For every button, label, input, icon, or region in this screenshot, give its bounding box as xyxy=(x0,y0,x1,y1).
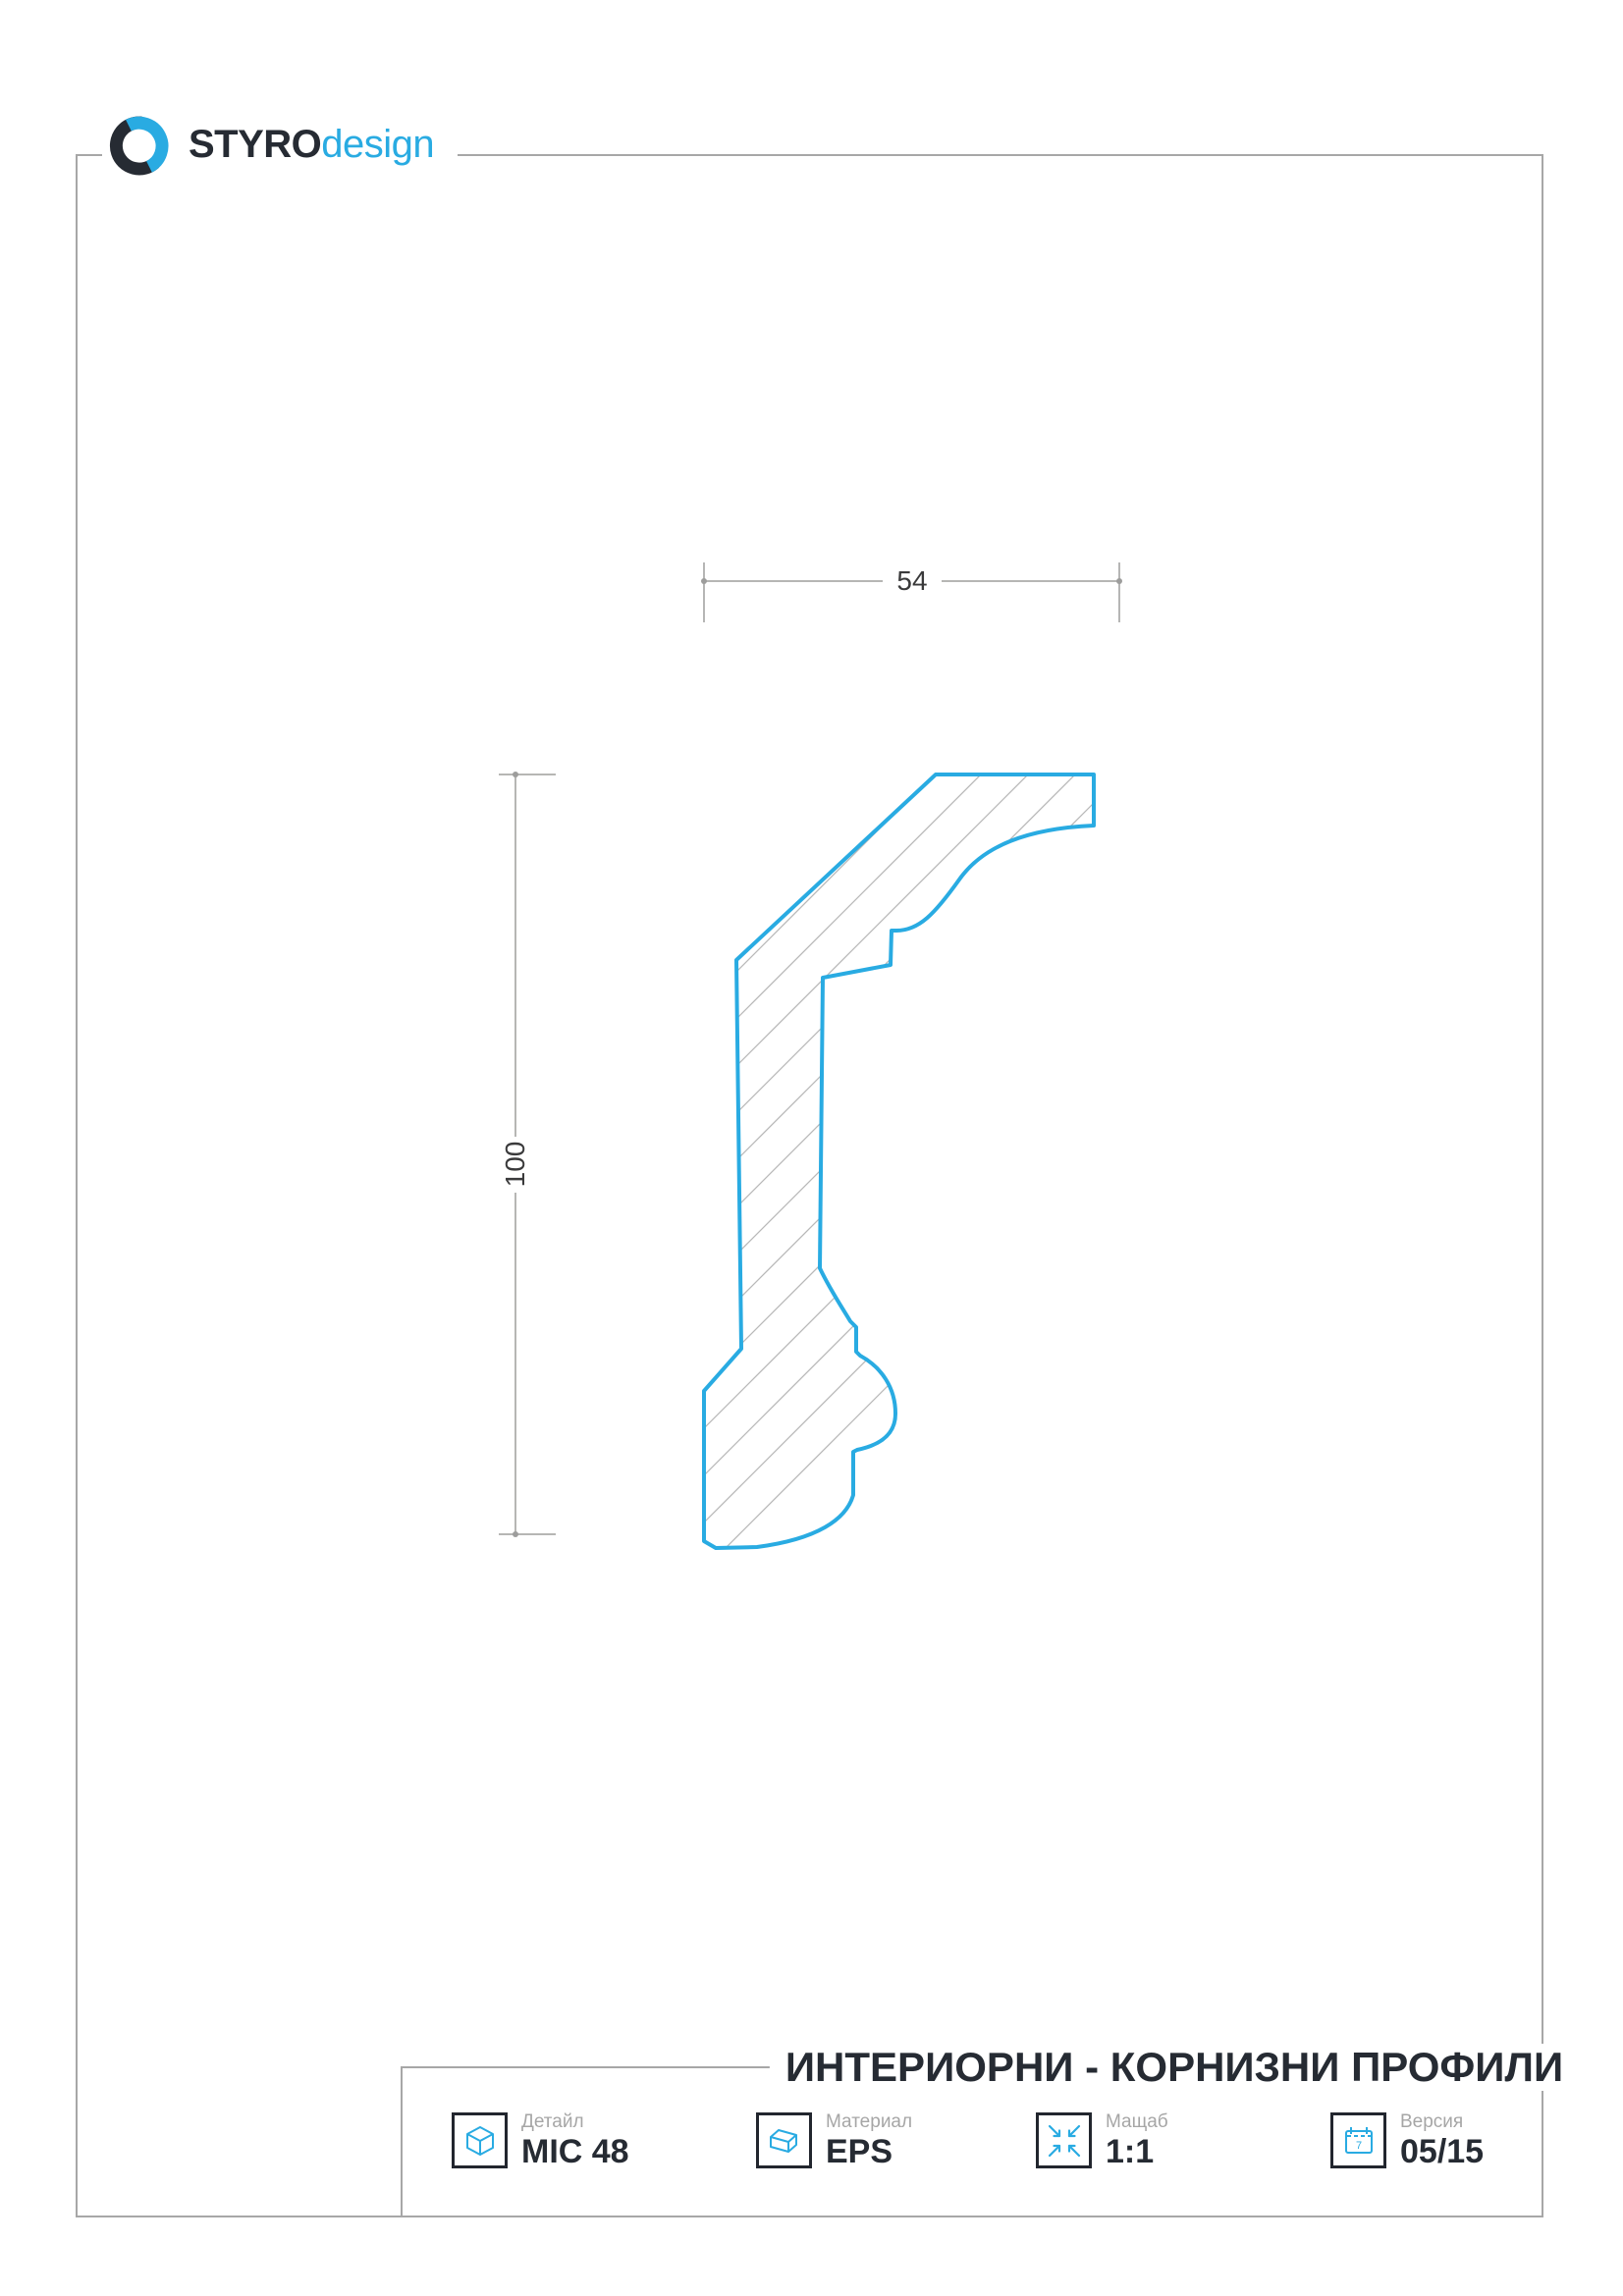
material-value: EPS xyxy=(826,2135,912,2170)
logo-wordmark: STYROdesign xyxy=(189,125,434,164)
title-block-left-border xyxy=(401,2066,403,2216)
calendar-icon: 7 xyxy=(1339,2121,1379,2161)
version-icon-box: 7 xyxy=(1330,2112,1386,2168)
logo-text-design: design xyxy=(321,123,434,166)
hatch-line xyxy=(183,638,1164,1620)
calendar-day-text: 7 xyxy=(1355,2140,1361,2152)
material-block-icon xyxy=(765,2121,804,2161)
material-label: Материал xyxy=(826,2112,912,2133)
detail-value: MIC 48 xyxy=(521,2135,629,2170)
logo-text-styro: STYRO xyxy=(189,123,321,166)
section-hatching xyxy=(88,638,1623,1620)
logo: STYROdesign xyxy=(102,99,458,189)
title-block-item-scale: Мащаб 1:1 xyxy=(1036,2112,1168,2170)
scale-icon-box xyxy=(1036,2112,1092,2168)
profile-drawing: 54 100 xyxy=(0,0,1623,2296)
scale-arrows-icon xyxy=(1045,2121,1084,2161)
cube-icon xyxy=(460,2121,500,2161)
hatch-line xyxy=(418,638,1400,1620)
scale-value: 1:1 xyxy=(1106,2135,1168,2170)
styro-swirl-icon xyxy=(102,107,177,182)
version-value: 05/15 xyxy=(1400,2135,1484,2170)
hatch-line xyxy=(371,638,1353,1620)
scale-label: Мащаб xyxy=(1106,2112,1168,2133)
title-block-item-material: Материал EPS xyxy=(756,2112,912,2170)
title-block-item-version: 7 Версия 05/15 xyxy=(1330,2112,1484,2170)
detail-label: Детайл xyxy=(521,2112,629,2133)
title-block-item-detail: Детайл MIC 48 xyxy=(452,2112,629,2170)
dimension-width-label: 54 xyxy=(896,565,927,596)
detail-icon-box xyxy=(452,2112,508,2168)
sheet-title: ИНТЕРИОРНИ - КОРНИЗНИ ПРОФИЛИ xyxy=(770,2044,1579,2091)
profile-outline-fill xyxy=(704,774,1094,1548)
material-icon-box xyxy=(756,2112,812,2168)
drawing-sheet: 54 100 STYROdesign ИНТЕРИОРНИ - КОРНИЗНИ… xyxy=(0,0,1623,2296)
hatch-line xyxy=(135,638,1117,1620)
dimension-height-label: 100 xyxy=(500,1142,530,1188)
version-label: Версия xyxy=(1400,2112,1484,2133)
